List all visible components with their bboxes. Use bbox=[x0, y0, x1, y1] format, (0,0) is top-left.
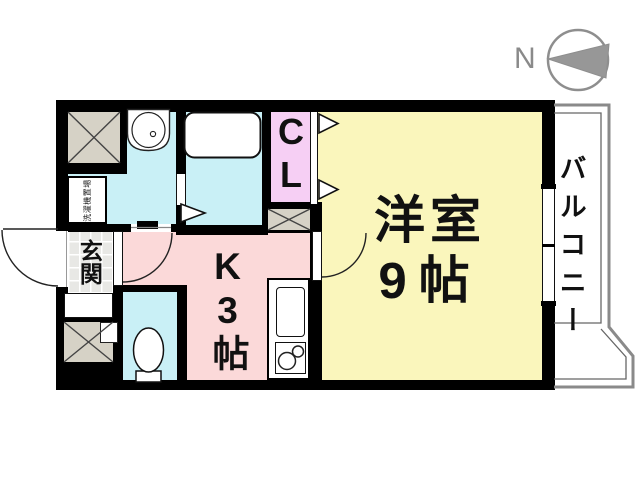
room-washroom bbox=[127, 112, 176, 225]
kitchen-door-leaf bbox=[113, 231, 123, 286]
closet-label: CL bbox=[270, 114, 310, 194]
washer-area-label: 洗濯機置場 bbox=[67, 176, 107, 224]
living-room-label-line2: 9帖 bbox=[330, 253, 530, 308]
compass-circle-icon bbox=[548, 30, 608, 90]
wall-hatch-bottom bbox=[56, 163, 127, 174]
floor-plan: 洋室 9帖 K3帖 CL 玄関 バルコニー 洗濯機置場 N bbox=[0, 0, 640, 480]
stove bbox=[275, 342, 306, 374]
shoe-storage-notch bbox=[100, 322, 118, 343]
entrance-step bbox=[64, 293, 113, 318]
entrance-label: 玄関 bbox=[67, 233, 111, 291]
wall-bath-left bbox=[176, 112, 186, 174]
wall-bottom bbox=[56, 380, 555, 390]
living-room-label-line1: 洋室 bbox=[330, 193, 530, 248]
living-door-leaf bbox=[312, 231, 322, 281]
compass-north-label: N bbox=[514, 42, 544, 76]
compass-north-arrow-icon bbox=[548, 44, 609, 78]
closet-door-strip bbox=[310, 112, 318, 204]
room-toilet bbox=[122, 292, 177, 380]
kitchen-sink bbox=[276, 287, 305, 337]
wall-bath-bottom bbox=[176, 225, 268, 235]
room-bathroom bbox=[186, 112, 262, 225]
wall-toilet-right bbox=[177, 285, 187, 380]
washroom-sliding-door-panel bbox=[137, 221, 158, 229]
kitchen-label: K3帖 bbox=[203, 241, 251, 379]
balcony-label: バルコニー bbox=[549, 141, 591, 356]
closet-hatch bbox=[268, 209, 310, 230]
pipe-space-hatch bbox=[68, 112, 120, 163]
bath-door-strip bbox=[176, 174, 186, 205]
entrance-door-arc bbox=[2, 230, 58, 286]
wall-toilet-top bbox=[113, 285, 187, 292]
